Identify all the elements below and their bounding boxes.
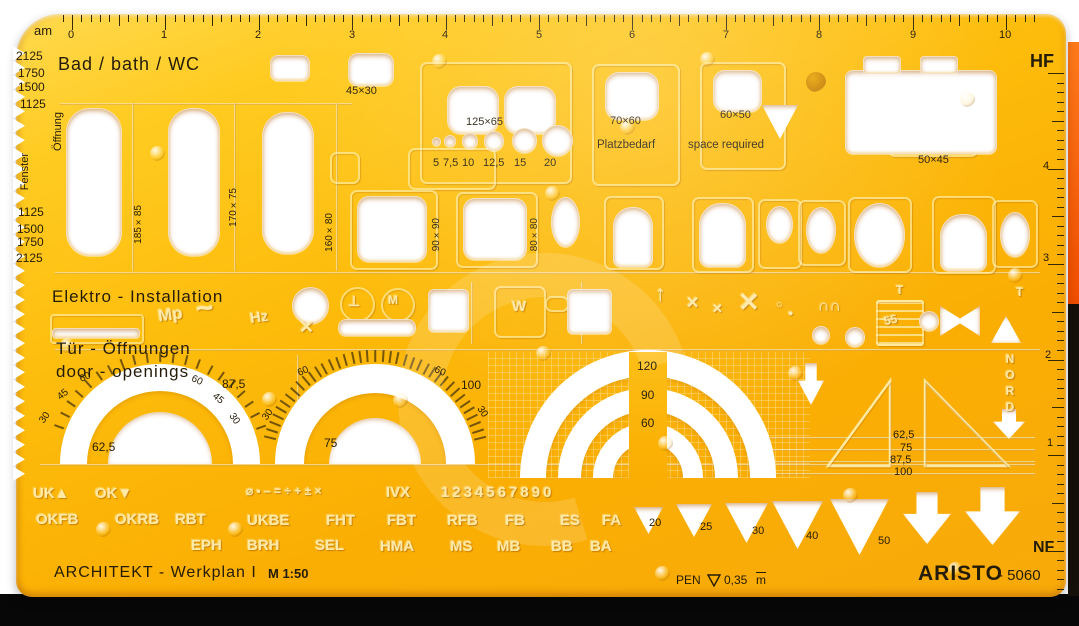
printed-label: 170×75 xyxy=(229,188,240,227)
printed-label: 100 xyxy=(894,467,912,479)
ruler-tick xyxy=(539,15,540,30)
ruler-tick xyxy=(1048,169,1064,170)
printed-label: Platzbedarf xyxy=(597,139,655,151)
circle-cutout-5 xyxy=(432,137,441,146)
ruler-tick xyxy=(782,15,783,22)
radiator-slot-cutout xyxy=(52,328,140,338)
ruler-tick xyxy=(847,15,848,22)
pen-label: PEN xyxy=(676,574,701,587)
embossed-label: FA xyxy=(602,513,621,528)
printed-label: 60×50 xyxy=(720,110,751,122)
lamp-cross: ✕ xyxy=(299,318,314,336)
pen-unit: m xyxy=(756,574,766,587)
slot-cutout xyxy=(338,319,416,336)
molded-dot xyxy=(545,186,560,201)
ridge-line xyxy=(336,103,338,271)
ruler-tick xyxy=(231,15,232,22)
molded-dot xyxy=(843,488,858,503)
square-cutout-90x90 xyxy=(357,196,427,262)
embossed-label: T xyxy=(1016,286,1023,298)
bidet-cutout-60x50 xyxy=(713,70,762,112)
printed-label: 50×45 xyxy=(918,155,949,167)
embossed-label: ✕ xyxy=(738,289,760,315)
ruler-tick xyxy=(670,15,671,22)
ruler-tick xyxy=(810,15,811,22)
ruler-tick xyxy=(1057,293,1064,294)
bathtub-cutout-185x85 xyxy=(66,108,122,256)
ruler-tick xyxy=(315,15,316,22)
ruler-tick xyxy=(1057,245,1064,246)
photo-edge-strip-dark xyxy=(1068,304,1079,596)
embossed-label: FHT xyxy=(326,513,355,528)
kitchen-unit-cutout xyxy=(845,70,997,154)
ruler-tick xyxy=(959,15,960,26)
ruler-tick xyxy=(1057,484,1064,485)
ridge-line xyxy=(132,103,134,271)
ruler-tick xyxy=(128,15,129,22)
ruler-tick xyxy=(1057,130,1064,131)
ruler-tick xyxy=(1057,226,1064,227)
printed-label: 125×65 xyxy=(466,117,503,129)
printed-label: 40 xyxy=(806,531,818,543)
ruler-tick xyxy=(212,15,213,26)
ruler-tick xyxy=(418,15,419,22)
embossed-label: ● xyxy=(788,309,793,318)
ruler-tick xyxy=(791,15,792,22)
embossed-label: ✕ xyxy=(686,296,699,312)
molded-dot xyxy=(788,366,803,381)
square-cutout-80x80 xyxy=(463,198,527,260)
ruler-tick xyxy=(1057,589,1064,590)
ruler-tick xyxy=(969,15,970,22)
embossed-label: FBT xyxy=(387,513,416,528)
oval-cutout xyxy=(1000,212,1030,257)
ruler-tick xyxy=(1057,570,1064,571)
ruler-tick xyxy=(1057,417,1064,418)
ruler-tick xyxy=(464,15,465,22)
window-height-value: 1750 xyxy=(17,236,44,249)
ruler-number: 8 xyxy=(816,30,822,42)
ruler-tick xyxy=(259,15,260,30)
ruler-tick xyxy=(1052,216,1064,217)
printed-label: 50 xyxy=(878,536,890,548)
ruler-tick xyxy=(502,15,503,22)
ruler-tick xyxy=(1057,560,1064,561)
stair-triangles xyxy=(820,370,1020,475)
ruler-tick xyxy=(660,15,661,22)
brand: ARISTO xyxy=(918,563,1003,585)
circle-cutout xyxy=(919,311,939,331)
printed-label: 25 xyxy=(700,522,712,534)
ruler-tick xyxy=(1057,283,1064,284)
small-tub-cutout xyxy=(270,55,310,81)
ruler-number: 4 xyxy=(442,30,448,42)
ruler-tick xyxy=(931,15,932,22)
section-title-bath: Bad / bath / WC xyxy=(58,55,200,74)
embossed-label: ∩∩ xyxy=(818,299,841,315)
ruler-tick xyxy=(997,15,998,22)
ruler-tick xyxy=(91,15,92,22)
embossed-label: MS xyxy=(450,539,473,554)
ruler-tick xyxy=(688,15,689,22)
embossed-label: ES xyxy=(560,513,580,528)
ruler-tick xyxy=(1057,188,1064,189)
ruler-tick xyxy=(773,15,774,26)
product-scale: M 1:50 xyxy=(268,567,308,581)
product-series: ARCHITEKT - Werkplan I xyxy=(54,565,257,582)
ruler-tick xyxy=(1057,321,1064,322)
ruler-tick xyxy=(296,15,297,22)
printed-label: 60 xyxy=(641,417,654,430)
photo-shadow-band xyxy=(0,594,1079,626)
ruler-tick xyxy=(1057,235,1064,236)
molded-dot xyxy=(806,72,826,92)
ruler-tick xyxy=(1057,512,1064,513)
pen-size: 0,35 xyxy=(724,574,747,587)
printed-label: 30 xyxy=(752,526,764,538)
ruler-tick xyxy=(1052,407,1064,408)
protractor-tick xyxy=(374,350,376,362)
ruler-tick xyxy=(595,15,596,22)
ruler-tick xyxy=(913,15,914,30)
ruler-tick xyxy=(446,15,447,30)
printed-label: 75 xyxy=(324,437,337,450)
ruler-tick xyxy=(1057,340,1064,341)
ruler-number: 6 xyxy=(629,30,635,42)
ruler-tick xyxy=(1057,102,1064,103)
ruler-tick xyxy=(119,15,120,26)
ruler-tick xyxy=(1057,178,1064,179)
ruler-tick xyxy=(679,15,680,26)
printed-label: 15 xyxy=(514,158,526,170)
embossed-label: FB xyxy=(505,513,525,528)
ruler-number: 10 xyxy=(999,30,1011,42)
ruler-tick xyxy=(371,15,372,22)
ruler-tick xyxy=(474,15,475,22)
ruler-tick xyxy=(922,15,923,22)
ruler-tick xyxy=(137,15,138,22)
protractor-tick xyxy=(381,350,383,362)
ruler-tick xyxy=(978,15,979,22)
ruler-tick xyxy=(1057,197,1064,198)
ruler-tick xyxy=(249,15,250,22)
embossed-label: BB xyxy=(551,539,573,554)
ruler-tick xyxy=(277,15,278,22)
ruler-tick xyxy=(175,15,176,22)
ruler-tick xyxy=(109,15,110,22)
printed-label: 90×90 xyxy=(432,218,443,251)
oval-cutout xyxy=(551,197,580,247)
printed-label: 62,5 xyxy=(92,441,115,454)
ruler-tick xyxy=(735,15,736,22)
molded-dot xyxy=(150,146,165,161)
circle-cutout-12-5 xyxy=(484,131,504,151)
ruler-tick xyxy=(203,15,204,22)
printed-label: 185×85 xyxy=(134,205,145,244)
window-height-value: 1500 xyxy=(17,223,44,236)
ruler-tick xyxy=(941,15,942,22)
window-height-value: 1125 xyxy=(20,98,46,111)
ruler-tick xyxy=(1006,15,1007,30)
ruler-tick xyxy=(184,15,185,22)
ruler-tick xyxy=(987,15,988,22)
printed-label: 160×80 xyxy=(325,213,336,252)
embossed-label: RBT xyxy=(175,512,206,527)
ruler-tick xyxy=(642,15,643,22)
printed-label: 70×60 xyxy=(610,116,641,128)
ruler-tick xyxy=(576,15,577,22)
embossed-label: RFB xyxy=(447,513,478,528)
window-label-de: Fenster xyxy=(20,153,32,190)
embossed-label: IVX xyxy=(386,485,410,500)
ruler-tick xyxy=(1057,274,1064,275)
ruler-tick xyxy=(530,15,531,22)
ruler-tick xyxy=(306,15,307,26)
ruler-number: 2 xyxy=(255,30,261,42)
printed-label: 120 xyxy=(637,360,657,373)
ruler-tick xyxy=(1048,455,1064,456)
ruler-tick xyxy=(390,15,391,22)
ruler-tick xyxy=(1057,254,1064,255)
ruler-tick xyxy=(1052,503,1064,504)
ruler-tick xyxy=(1057,579,1064,580)
ruler-tick xyxy=(1052,312,1064,313)
section-title-doors-de: Tür - Öffnungen xyxy=(56,340,191,358)
molded-dot xyxy=(658,436,673,451)
window-height-value: 2125 xyxy=(16,252,43,265)
embossed-label: OK▼ xyxy=(95,486,132,501)
printed-label: 75 xyxy=(900,443,912,455)
printed-label: 87,5 xyxy=(222,378,245,391)
embossed-label: SEL xyxy=(315,538,344,553)
ruler-tick xyxy=(558,15,559,22)
oval-cutout xyxy=(854,203,905,267)
ruler-tick xyxy=(352,15,353,30)
kitchen-unit-tab xyxy=(920,56,958,74)
embossed-label: UK▲ xyxy=(33,486,70,501)
ruler-tick xyxy=(567,15,568,22)
window-height-value: 1125 xyxy=(18,206,44,219)
ruler-tick xyxy=(287,15,288,22)
embossed-label: ⌀ ▪ ‒ = ÷ + ± × xyxy=(246,485,322,497)
embossed-label: T xyxy=(896,284,903,296)
ruler-tick xyxy=(492,15,493,26)
embossed-label: ⊥ xyxy=(348,294,360,308)
embossed-label: HMA xyxy=(380,539,414,554)
ruler-number: 9 xyxy=(910,30,916,42)
ruler-tick xyxy=(651,15,652,22)
molded-dot xyxy=(1008,268,1023,283)
ruler-tick xyxy=(100,15,101,22)
corner-label-hf: HF xyxy=(1030,52,1054,71)
printed-label: 10 xyxy=(462,158,474,170)
window-height-value: 1500 xyxy=(18,81,45,94)
ruler-tick xyxy=(838,15,839,22)
ruler-tick xyxy=(1057,140,1064,141)
ruler-tick xyxy=(1057,436,1064,437)
ruler-tick xyxy=(857,15,858,22)
toilet-cutout-70x60 xyxy=(605,72,659,120)
embossed-label: ✕ xyxy=(712,302,723,315)
ruler-tick xyxy=(1057,159,1064,160)
ruler-tick xyxy=(716,15,717,22)
ruler-tick xyxy=(221,15,222,22)
printed-label: 12,5 xyxy=(483,158,504,170)
circle-cutout xyxy=(845,327,865,347)
ruler-tick xyxy=(399,15,400,26)
ruler-tick xyxy=(1048,264,1064,265)
ruler-tick xyxy=(1057,426,1064,427)
embossed-label: OKFB xyxy=(36,512,79,527)
embossed-label: OKRB xyxy=(115,512,159,527)
ruler-tick xyxy=(1015,15,1016,22)
embossed-label: BRH xyxy=(247,538,280,553)
molded-dot xyxy=(262,392,277,407)
ruler-tick xyxy=(707,15,708,22)
ruler-tick xyxy=(1057,465,1064,466)
embossed-label: MB xyxy=(497,539,520,554)
printed-label: 62,5 xyxy=(893,430,914,442)
motor-symbol xyxy=(381,288,415,322)
printed-label: space required xyxy=(688,139,764,151)
ruler-tick xyxy=(1057,350,1064,351)
ruler-tick xyxy=(455,15,456,22)
kitchen-unit-tab xyxy=(863,56,901,74)
ruler-number: 1 xyxy=(1047,438,1053,450)
oval-cutout xyxy=(806,207,836,253)
ruler-tick xyxy=(1057,379,1064,380)
circle-cutout xyxy=(812,326,830,344)
ruler-tick xyxy=(744,15,745,22)
embossed-label: BA xyxy=(590,539,612,554)
printed-label: 7,5 xyxy=(443,158,458,170)
ruler-tick xyxy=(408,15,409,22)
printed-label: 20 xyxy=(544,158,556,170)
ruler-number: 0 xyxy=(68,30,74,42)
hatch-symbol xyxy=(876,300,924,346)
ruler-tick xyxy=(81,15,82,22)
window-height-value: 1750 xyxy=(18,67,45,80)
molded-dot xyxy=(393,393,408,408)
ruler-tick xyxy=(324,15,325,22)
molded-dot xyxy=(960,92,975,107)
ruler-tick xyxy=(147,15,148,22)
embossed-label: W xyxy=(512,299,526,314)
ruler-tick xyxy=(1057,531,1064,532)
printed-label: 90 xyxy=(641,389,654,402)
ruler-tick xyxy=(866,15,867,26)
embossed-label: Hz xyxy=(249,309,269,326)
ruler-tick xyxy=(240,15,241,22)
product-photo-aristo-template: ✕ xyxy=(0,0,1079,626)
ruler-tick xyxy=(1057,445,1064,446)
embossed-label: ○ xyxy=(776,300,783,311)
ruler-tick xyxy=(1057,92,1064,93)
pen-nib-icon xyxy=(706,574,722,587)
corner-label-nf: NF xyxy=(1033,540,1054,557)
model: - 5060 xyxy=(998,568,1041,584)
ruler-tick xyxy=(380,15,381,22)
circle-cutout-10 xyxy=(462,133,478,149)
ruler-tick xyxy=(268,15,269,22)
ruler-tick xyxy=(1057,331,1064,332)
circle-cutout-15 xyxy=(512,128,537,153)
molded-dot xyxy=(655,566,670,581)
ruler-tick xyxy=(72,15,73,30)
ruler-tick xyxy=(819,15,820,30)
ruler-tick xyxy=(1057,149,1064,150)
window-height-value: 2125 xyxy=(16,50,43,63)
shower-tray-cutout-45x30 xyxy=(348,53,394,86)
ruler-tick xyxy=(623,15,624,22)
ruler-tick xyxy=(343,15,344,22)
ruler-tick xyxy=(1057,541,1064,542)
ruler-number: 7 xyxy=(723,30,729,42)
ruler-tick xyxy=(829,15,830,22)
ruler-tick xyxy=(1057,369,1064,370)
ruler-number: 3 xyxy=(349,30,355,42)
ruler-tick xyxy=(875,15,876,22)
toilet-cutout xyxy=(940,214,987,271)
ruler-tick xyxy=(193,15,194,22)
ruler-tick xyxy=(1057,474,1064,475)
ruler-number: 1 xyxy=(161,30,167,42)
ruler-tick xyxy=(511,15,512,22)
embossed-label: M xyxy=(388,294,398,306)
ruler-tick xyxy=(1057,388,1064,389)
ruler-tick xyxy=(1025,15,1026,22)
ruler-number: 2 xyxy=(1045,350,1051,362)
ruler-number: 3 xyxy=(1043,253,1049,265)
ruler-tick xyxy=(436,15,437,22)
printed-label: 5 xyxy=(433,158,439,170)
ruler-tick xyxy=(586,15,587,26)
circle-cutout-7-5 xyxy=(444,135,456,147)
ruler-tick xyxy=(885,15,886,22)
ruler-tick xyxy=(1057,398,1064,399)
window-opening-label-de: Öffnung xyxy=(53,112,65,151)
ruler-tick xyxy=(1052,121,1064,122)
ruler-tick xyxy=(1057,111,1064,112)
ruler-tick xyxy=(604,15,605,22)
toilet-cutout xyxy=(613,207,653,267)
toilet-cutout xyxy=(699,203,746,267)
ruler-tick xyxy=(903,15,904,22)
molded-dot xyxy=(536,346,551,361)
ruler-tick xyxy=(1048,73,1064,74)
ruler-tick xyxy=(334,15,335,22)
molded-dot xyxy=(700,52,715,67)
embossed-label: Mp xyxy=(157,304,184,324)
ruler-tick xyxy=(698,15,699,22)
bathtub-cutout-170x75 xyxy=(168,108,220,256)
molded-dot xyxy=(96,522,111,537)
ruler-number: 5 xyxy=(536,30,542,42)
embossed-label: 55 xyxy=(883,313,899,328)
ruler-tick xyxy=(614,15,615,22)
embossed-label: ~ xyxy=(194,293,216,325)
printed-label: 100 xyxy=(461,379,481,392)
corner-label-am: am xyxy=(34,24,52,38)
ruler-tick xyxy=(1034,15,1035,22)
printed-label: 87,5 xyxy=(890,455,911,467)
ruler-tick xyxy=(754,15,755,22)
north-label: NORD xyxy=(1004,352,1016,416)
ruler-tick xyxy=(950,15,951,22)
ruler-tick xyxy=(1057,493,1064,494)
ruler-tick xyxy=(427,15,428,22)
oval-cutout xyxy=(766,206,793,243)
